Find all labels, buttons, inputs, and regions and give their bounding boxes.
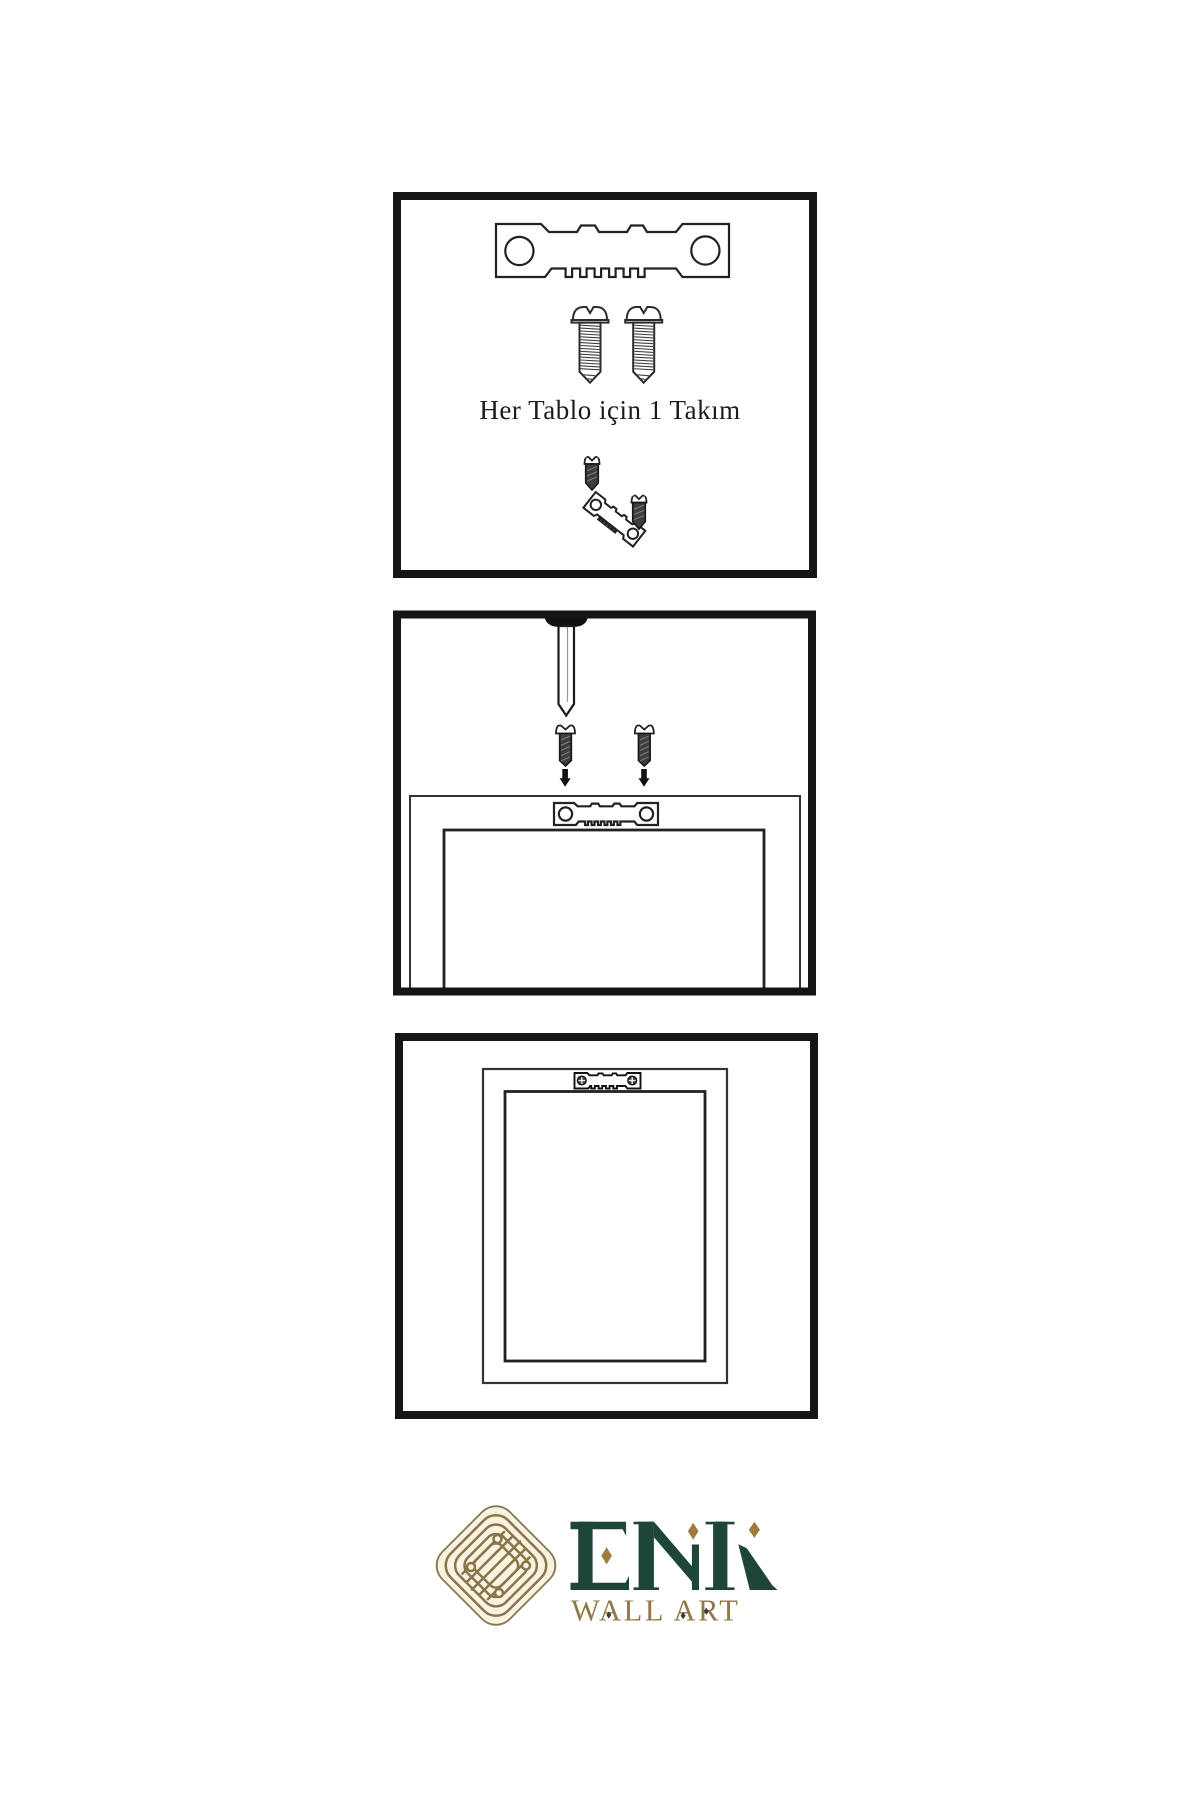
svg-text:WALL ART: WALL ART (571, 1594, 740, 1628)
svg-text:Her Tablo için 1 Takım: Her Tablo için 1 Takım (479, 395, 740, 425)
